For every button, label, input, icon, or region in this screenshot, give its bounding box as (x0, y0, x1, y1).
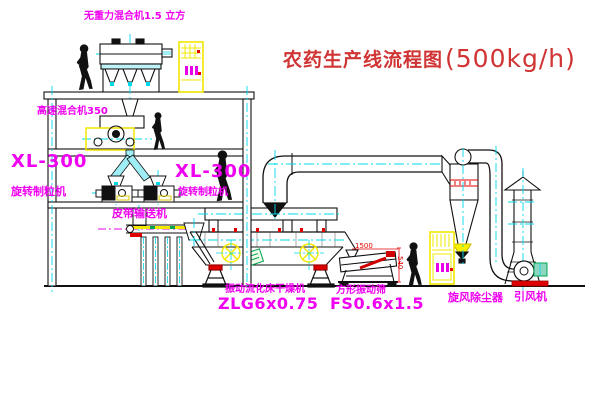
exhaust-duct (263, 153, 442, 217)
granulator-left (96, 176, 138, 202)
induced-draft-fan (512, 261, 548, 286)
building-right-wall (243, 86, 251, 292)
label-dryer-model: ZLG6x0.75 (218, 296, 318, 312)
label-high-speed-mixer: 高速混合机350 (37, 107, 108, 117)
label-gravity-free-mixer: 无重力混合机1.5 立方 (84, 12, 185, 22)
label-belt-conveyor: 皮带输送机 (112, 208, 167, 219)
control-cabinet-bottom (430, 232, 454, 284)
person-figure-roof (77, 44, 93, 90)
conveyor-support-legs (141, 237, 182, 286)
label-granulator-mid-name: 旋转制粒机 (178, 188, 228, 198)
title-text: 农药生产线流程图 (283, 45, 443, 72)
title-capacity: (500kg/h) (445, 44, 576, 73)
label-cyclone: 旋风除尘器 (448, 292, 503, 303)
person-figure-ground (406, 242, 421, 286)
dimension-sieve-height: 540 (396, 256, 404, 269)
control-cabinet-top (179, 42, 203, 92)
high-speed-mixer-machine (86, 116, 144, 150)
person-figure-level2 (152, 112, 165, 150)
label-granulator-mid-model: XL-300 (175, 163, 251, 181)
process-flow-diagram: 农药生产线流程图 (500kg/h) 无重力混合机1.5 立方 高速混合机350… (0, 0, 600, 403)
gravity-free-mixer-machine (100, 39, 172, 116)
label-granulator-left-name: 旋转制粒机 (11, 186, 66, 197)
dimension-sieve-width: 1500 (355, 242, 373, 250)
label-sieve-model: FS0.6x1.5 (330, 296, 424, 312)
label-fan: 引风机 (514, 291, 547, 302)
label-granulator-left-model: XL-300 (11, 153, 87, 171)
diagram-title: 农药生产线流程图 (500kg/h) (283, 44, 576, 73)
